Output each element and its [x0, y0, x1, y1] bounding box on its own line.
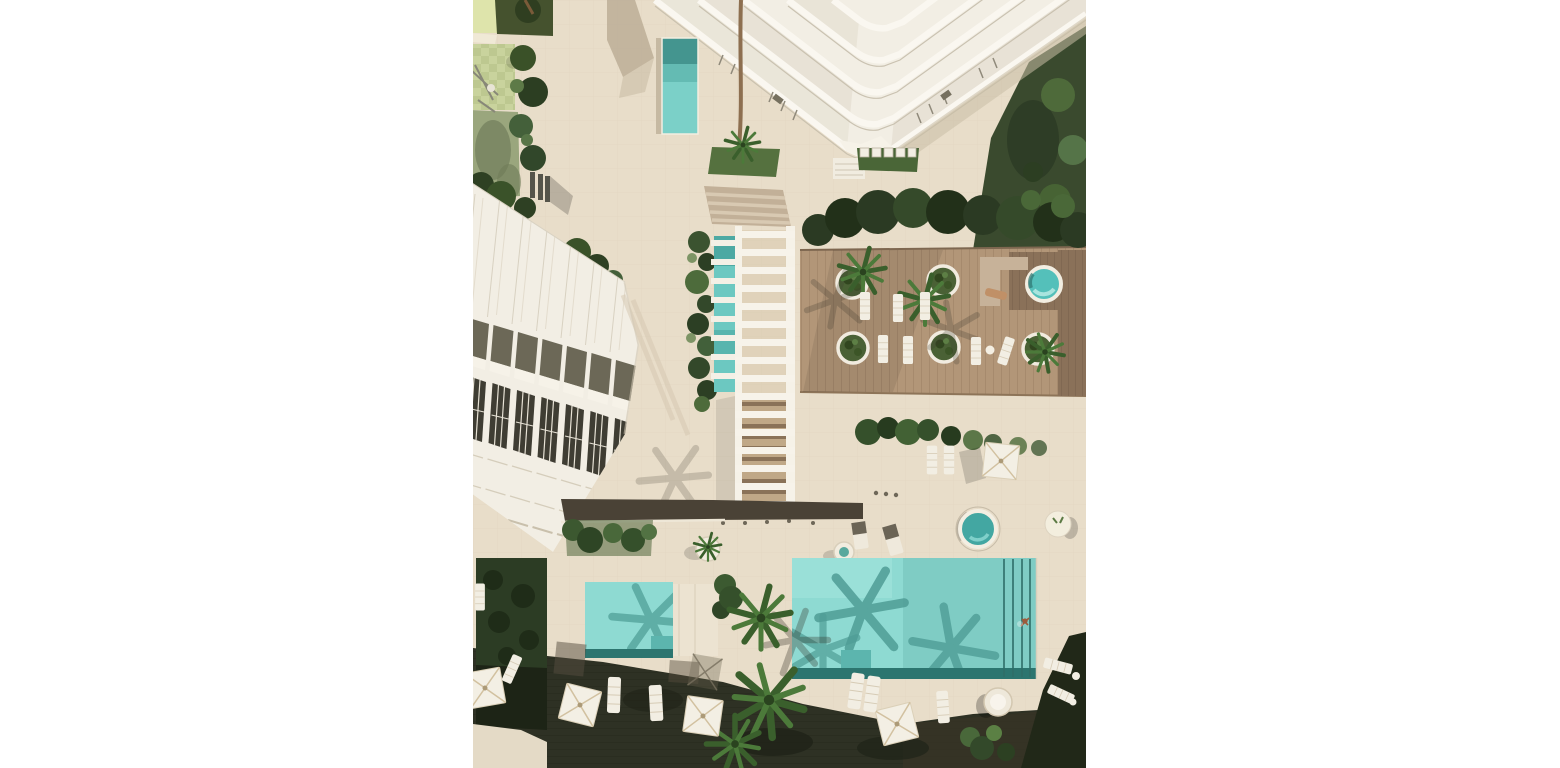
- sun-lounger: [971, 337, 981, 365]
- hot-tub: [1027, 267, 1061, 301]
- palm-trunk: [739, 0, 741, 148]
- water-channel: [711, 236, 738, 392]
- tree-canopy: [1041, 78, 1075, 112]
- kids-pool: [585, 571, 718, 665]
- render-canvas: [0, 0, 1560, 768]
- sun-lounger: [878, 335, 888, 363]
- parasol: [473, 667, 506, 709]
- sun-lounger: [860, 292, 870, 320]
- parasol: [683, 696, 724, 737]
- lap-pool: [656, 38, 698, 134]
- retaining-wall: [561, 499, 863, 522]
- pool-edge-shadow: [585, 649, 673, 658]
- play-mat: [473, 0, 497, 33]
- wall-bushes: [562, 519, 657, 556]
- pool-shadow-edge: [656, 38, 662, 134]
- sun-lounger: [944, 446, 954, 475]
- sun-lounger: [893, 294, 903, 322]
- sun-lounger: [475, 584, 485, 611]
- parasol: [982, 442, 1020, 480]
- aerial-render: [473, 0, 1086, 768]
- pool-edge-shadow: [792, 668, 1037, 679]
- sun-lounger: [920, 292, 930, 320]
- sun-lounger: [607, 677, 621, 713]
- tree-canopy: [1023, 162, 1043, 182]
- main-pool: [777, 558, 1037, 700]
- round-planter: [838, 333, 868, 363]
- hot-tub-2: [956, 507, 1000, 551]
- play-equipment: [487, 84, 495, 92]
- side-table: [1070, 699, 1077, 706]
- side-table: [986, 346, 995, 355]
- sun-lounger: [649, 685, 664, 722]
- sun-lounger: [936, 690, 950, 723]
- sun-lounger: [903, 336, 913, 364]
- side-table: [1072, 672, 1080, 680]
- pergola-shadow: [704, 186, 791, 227]
- scene-svg: [473, 0, 1086, 768]
- sun-deck: [800, 188, 1086, 396]
- sun-lounger: [927, 446, 937, 475]
